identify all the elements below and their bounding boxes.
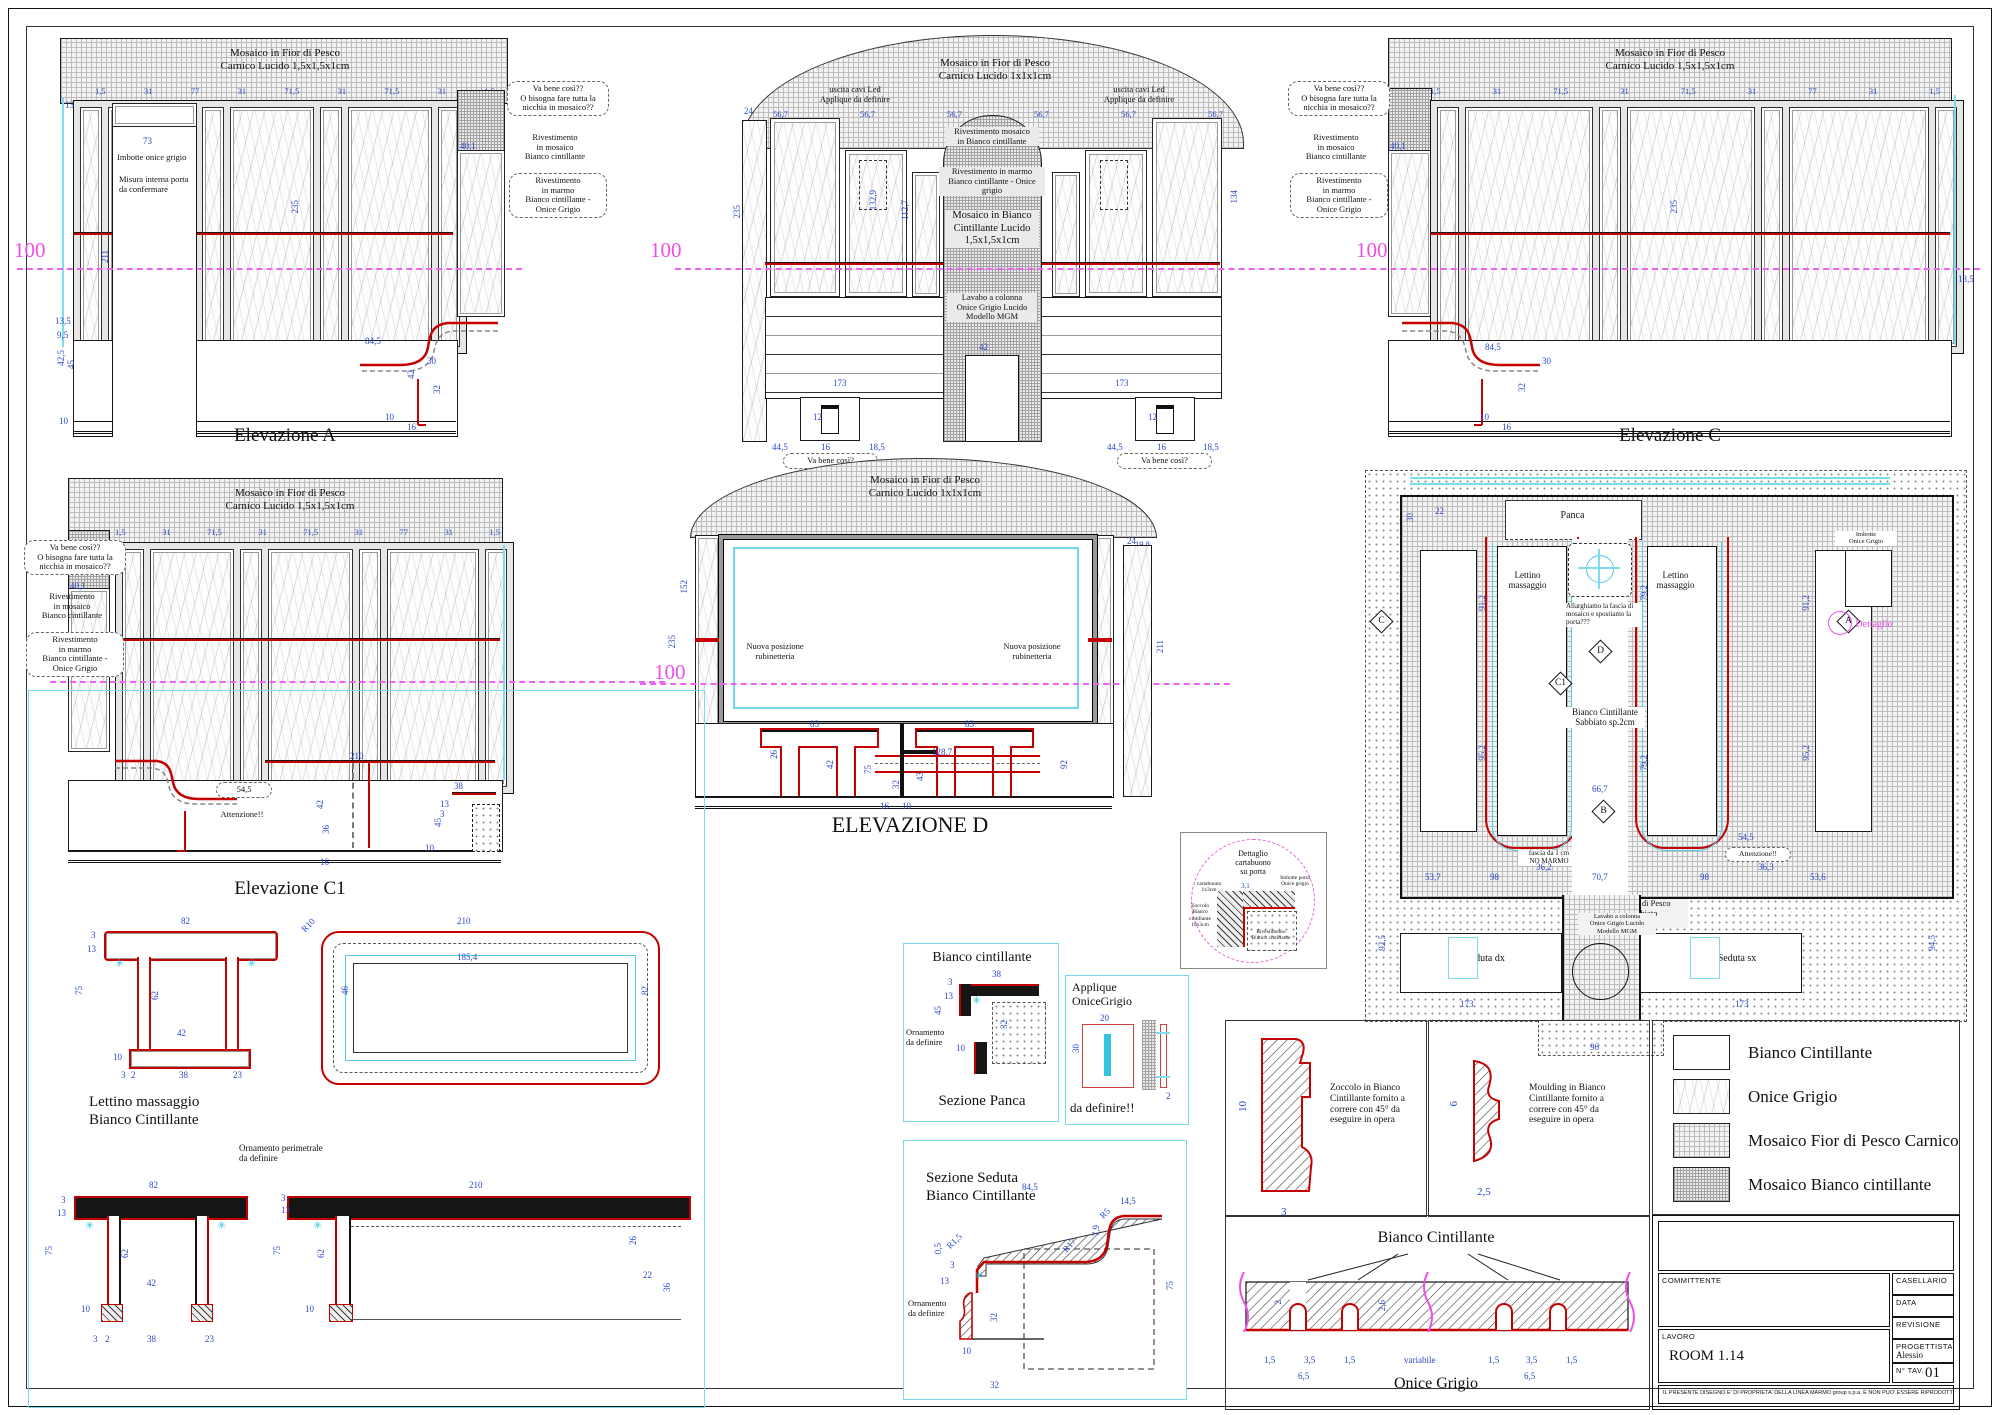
dim: 82 — [181, 917, 190, 926]
dim: 210 — [457, 917, 471, 926]
dim: 84,5 — [365, 337, 381, 346]
dim: 10 — [1238, 1101, 1249, 1112]
dim: 42 — [407, 370, 416, 379]
dim: 6 — [1449, 1101, 1460, 1107]
dim: 13 — [87, 945, 96, 954]
dim: 6,5 — [1298, 1372, 1309, 1381]
elev-d-red-tick-right — [1088, 638, 1112, 642]
dim: 3 — [61, 1196, 66, 1205]
elev-c-note-rmos: Rivestimento in mosaico Bianco cintillan… — [1296, 133, 1376, 162]
panca-profile-drop — [959, 984, 971, 1016]
dim: 30 — [427, 357, 436, 366]
legend-label: Onice Grigio — [1748, 1087, 1837, 1107]
dim: 32 — [990, 1313, 999, 1322]
lettino-ornamento-note: Ornamento perimetrale da definire — [239, 1143, 349, 1164]
dim: 83 — [965, 720, 974, 729]
titleblock-revisione: REVISIONE — [1892, 1317, 1954, 1339]
dim: 10 — [81, 1305, 90, 1314]
onyx-panel — [1627, 107, 1755, 347]
moulding-label: Moulding in Bianco Cintillante fornito a… — [1529, 1083, 1629, 1126]
sezione-panca-material: Bianco cintillante — [912, 950, 1052, 967]
elev-d-side-wall — [1123, 545, 1152, 797]
plan-crosshair — [1586, 555, 1614, 583]
field-label: REVISIONE — [1896, 1320, 1940, 1329]
elev-a-cyan-line — [62, 97, 64, 347]
dim: 56,7 — [1208, 110, 1223, 119]
dim: 45 — [67, 360, 76, 369]
legend-swatch-mosaico-bianco — [1673, 1167, 1730, 1202]
strip-panel: Bianco Cintillante 1,5 3,5 1,5 variabile… — [1225, 1215, 1650, 1410]
elev-b-window — [912, 172, 940, 297]
dim: 75 — [864, 765, 873, 774]
snowflake-icon: ✳ — [972, 994, 981, 1007]
dim: 3 — [121, 1071, 126, 1080]
dim: 42,5 — [57, 350, 66, 366]
dim: 1,5 — [1264, 1356, 1275, 1365]
elev-a-note-misura: Misura interna porta da confermare — [119, 175, 209, 194]
legend-label: Mosaico Fior di Pesco Carnico — [1748, 1131, 1959, 1151]
dim: 32 — [433, 385, 442, 394]
dim: 84,5 — [1485, 343, 1501, 352]
dim: 10 — [305, 1305, 314, 1314]
dim: 1,5 — [1488, 1356, 1499, 1365]
elev-c-note-q1: Va bene così?? O bisogna fare tutta la n… — [1288, 81, 1390, 116]
applique-mosaic-strip — [1142, 1020, 1156, 1090]
detail-door-box: Dettaglio cartabuono su porta cartabuono… — [1180, 832, 1327, 969]
strip-top-label: Bianco Cintillante — [1326, 1228, 1546, 1247]
dim: 36,2 — [1536, 863, 1552, 872]
elev-c1-mosaic-label: Mosaico in Fior di Pesco Carnico Lucido … — [170, 487, 410, 513]
lettino-side-floor — [351, 1319, 681, 1320]
plug-icon — [821, 405, 839, 434]
elev-b-note-rmarmo: Rivestimento in marmo Bianco cintillante… — [939, 167, 1045, 196]
dim: 211 — [1156, 640, 1165, 653]
elev-b-mosaic-label: Mosaico in Fior di Pesco Carnico Lucido … — [875, 57, 1115, 83]
plan-corridor-line2 — [1410, 483, 1890, 485]
titleblock-committente: COMMITTENTE — [1658, 1273, 1890, 1327]
sezione-panca-box: Bianco cintillante ✳ 38 3 13 45 32 10 Or… — [903, 943, 1059, 1122]
snowflake-icon: ✳ — [115, 957, 124, 970]
plan-seduta-sx-niche — [1690, 937, 1720, 979]
onyx-panel — [1789, 107, 1929, 347]
dim: 1,5 — [489, 528, 500, 537]
lettino-sec2-top — [74, 1196, 248, 1220]
zoccolo-profile — [1254, 1033, 1324, 1203]
elev-d-shelf-left — [760, 728, 879, 748]
seduta-profile: ✳ — [914, 1171, 1176, 1386]
elev-a-top-dims: 1,531773171,53171,5311,5 — [95, 87, 495, 96]
lettino-side-dashed — [351, 1226, 681, 1227]
elev-a-step-profile — [330, 317, 505, 437]
snowflake-icon: ✳ — [217, 1219, 226, 1232]
dim: 56,7 — [1121, 110, 1136, 119]
plan-lettino-1-label: Lettino massaggio — [1500, 570, 1555, 591]
dim: 3 — [91, 931, 96, 940]
dim: 56,7 — [947, 110, 962, 119]
dim: 1,5 — [95, 87, 106, 96]
dim: 92 — [1060, 760, 1069, 769]
field-label: COMMITTENTE — [1662, 1276, 1721, 1285]
level-label-a: 100 — [14, 240, 46, 261]
dim: 31 — [338, 87, 347, 96]
dim: 84,5 — [1022, 1183, 1038, 1192]
plan-corridor-line — [1410, 477, 1890, 479]
dim: 13 — [57, 1209, 66, 1218]
dim: 91,2 — [1802, 595, 1811, 611]
dim: 24 — [744, 107, 753, 116]
dim: 2,6 — [1378, 1300, 1387, 1311]
lettino-side-foot — [329, 1304, 353, 1322]
dim: 211 — [101, 250, 110, 263]
dim: 2 — [1274, 1300, 1283, 1305]
detail-door-rivestimento: Rivestimento Bianco cintillante — [1249, 929, 1293, 942]
dim: 73 — [143, 137, 152, 146]
legend-label: Mosaico Bianco cintillante — [1748, 1175, 1931, 1195]
dim: 31 — [238, 87, 247, 96]
elev-c-mosaic-label: Mosaico in Fior di Pesco Carnico Lucido … — [1540, 47, 1800, 73]
elev-a-niche-panel — [457, 150, 505, 317]
dim: 7,9 — [1092, 1225, 1101, 1236]
dim: 12 — [1148, 413, 1157, 422]
dim: 12 — [813, 413, 822, 422]
dim: 36,3 — [1758, 863, 1774, 872]
dim: 56,7 — [1034, 110, 1049, 119]
dim: 3 — [281, 1194, 286, 1203]
dim: 94,5 — [1928, 935, 1937, 951]
legend-swatch-mosaico-fior — [1673, 1123, 1730, 1158]
elev-c1-note-rmos: Rivestimento in mosaico Bianco cintillan… — [32, 592, 112, 621]
elev-c1-note-rmarmo: Rivestimento in marmo Bianco cintillante… — [26, 632, 124, 677]
elev-d-red-tick-left — [695, 638, 719, 642]
dim: 24 — [1127, 537, 1136, 546]
elev-b-lavabo-niche — [965, 355, 1019, 442]
elev-b-lower-band-left — [765, 297, 945, 399]
dim: 36 — [663, 1283, 672, 1292]
onyx-panel — [1599, 107, 1621, 347]
dim: 3,1 — [1241, 883, 1250, 890]
dim: 82 — [641, 986, 650, 995]
dim: 98 — [1490, 873, 1499, 882]
legend-label: Bianco Cintillante — [1748, 1043, 1872, 1063]
plan-lettino-2-label: Lettino massaggio — [1648, 570, 1703, 591]
dim: 95,2 — [1478, 745, 1487, 761]
detail-door-imbotte: Imbotte porta Onice grigio — [1273, 875, 1317, 888]
dim: 79,2 — [1640, 585, 1649, 601]
elev-c-wainscot — [1430, 100, 1964, 354]
dim: 13 — [65, 101, 74, 110]
lettino-title: Lettino massaggio Bianco Cintillante — [89, 1093, 309, 1129]
titleblock-progettista: PROGETTISTA Alessio — [1892, 1339, 1954, 1363]
elev-d-shelf-right — [915, 728, 1034, 748]
elev-b-note-lavabo: Lavabo a colonna Onice Grigio Lucido Mod… — [947, 293, 1037, 322]
dim: R10 — [300, 917, 317, 934]
legend-item: Mosaico Bianco cintillante — [1673, 1167, 1931, 1202]
dim: 31 — [355, 528, 364, 537]
applique-cyan-tie-top — [1156, 1032, 1170, 1034]
titleblock-tav-value: 01 — [1925, 1365, 1940, 1382]
dim: 132,9 — [869, 190, 878, 210]
dim: variabile — [1404, 1356, 1435, 1365]
elev-b-note-led1: uscita cavi Led Applique da definire — [813, 85, 897, 104]
dim: 13,5 — [55, 317, 71, 326]
detail-door-head — [1243, 891, 1295, 909]
lettino-sec-base — [129, 1049, 251, 1069]
plan-view: Panca Lettino massaggio Lettino massaggi… — [1340, 455, 1980, 1065]
field-label: DATA — [1896, 1298, 1917, 1307]
dim: 13 — [940, 1277, 949, 1286]
elev-c-level-line — [1320, 268, 1980, 270]
dim: 3,5 — [1526, 1356, 1537, 1365]
dim: 38 — [147, 1335, 156, 1344]
panca-profile-moulding — [974, 1042, 987, 1074]
titleblock-progettista-value: Alessio — [1896, 1350, 1923, 1360]
lettino-plan — [321, 931, 660, 1085]
elev-d-title: ELEVAZIONE D — [760, 812, 1060, 838]
elev-c-niche-panel — [1388, 150, 1432, 317]
elev-c-top-dims: 1,53171,53171,53177311,5 — [1430, 87, 1940, 96]
moulding-profile — [1464, 1056, 1519, 1176]
field-label: N° TAV. — [1896, 1366, 1924, 1375]
elev-b-note-rmos: Rivestimento mosaico in Bianco cintillan… — [945, 127, 1039, 146]
onyx-panel — [80, 107, 102, 347]
dim: 77 — [191, 87, 200, 96]
snowflake-icon: ✳ — [85, 1219, 94, 1232]
section-marker-letter: D — [1593, 644, 1608, 659]
applique-title: Applique OniceGrigio — [1072, 980, 1152, 1009]
dim: 10 — [113, 1053, 122, 1062]
zoccolo-label: Zoccolo in Bianco Cintillante fornito a … — [1330, 1083, 1422, 1126]
dim: 40,1 — [460, 142, 476, 151]
dim: 2,5 — [1477, 1187, 1491, 1198]
dim: 38 — [992, 970, 1001, 979]
dim: 26 — [770, 750, 779, 759]
detail-door-cartabuono: cartabuono 1x3cm — [1189, 881, 1229, 894]
plug-icon — [1156, 405, 1174, 434]
dim: 14,5 — [1120, 1197, 1136, 1206]
dim: 38 — [179, 1071, 188, 1080]
snowflake-icon: ✳ — [313, 1219, 322, 1232]
elev-c-cyan-line — [1954, 95, 1956, 345]
snowflake-icon: ✳ — [247, 957, 256, 970]
dim: 31 — [144, 87, 153, 96]
elev-b-red-line-left — [765, 262, 943, 265]
dim: 16 — [880, 802, 889, 811]
dim: 185,4 — [457, 953, 477, 962]
dim: 173 — [1460, 1000, 1474, 1009]
plan-lavabo-circle — [1572, 943, 1629, 1000]
dim: 71,5 — [384, 87, 399, 96]
elev-b-note-led2: uscita cavi Led Applique da definire — [1097, 85, 1181, 104]
dim: 53,6 — [1810, 873, 1826, 882]
section-marker-letter: C1 — [1553, 676, 1568, 691]
titleblock-data: DATA — [1892, 1295, 1954, 1317]
plan-note-allarghiamo: Allarghiamo la fascia di mosaico e spost… — [1566, 603, 1642, 627]
elev-c1-red-line — [115, 638, 500, 641]
strip-drawing — [1238, 1252, 1636, 1352]
dim: 98 — [1700, 873, 1709, 882]
dim: 112,7 — [901, 200, 910, 220]
dim: 56,7 — [860, 110, 875, 119]
dim: 70,7 — [1592, 873, 1608, 882]
lettino-sec2-foot — [191, 1304, 213, 1322]
dim: 42 — [147, 1279, 156, 1288]
dim: 91,2 — [1478, 595, 1487, 611]
dim: 42 — [177, 1029, 186, 1038]
onyx-panel — [1761, 107, 1783, 347]
seduta-ornamento-note: Ornamento da definire — [908, 1299, 960, 1318]
dim: 75 — [45, 1246, 54, 1255]
elev-b-note-mosB: Mosaico in Bianco Cintillante Lucido 1,5… — [945, 210, 1039, 248]
dim: 235 — [733, 205, 742, 219]
applique-led-bar — [1104, 1034, 1111, 1076]
dim: 2 — [131, 1071, 136, 1080]
dim: 16 — [407, 423, 416, 432]
onyx-panel — [230, 107, 314, 347]
disclaimer-text: IL PRESENTE DISEGNO E' DI PROPRIETA' DEL… — [1663, 1390, 1954, 1396]
panca-profile-top — [959, 984, 1039, 996]
section-marker-letter: B — [1596, 804, 1611, 819]
elev-b-red-line-right — [1040, 262, 1220, 265]
plan-imbotte-label: Imbotte Onice Grigio — [1835, 531, 1897, 546]
applique-box: Applique OniceGrigio 20 30 2 da definire… — [1065, 975, 1189, 1125]
dim: 10 — [902, 802, 911, 811]
plan-note-attenzione: Attenzione!! — [1725, 847, 1791, 862]
lettino-plan-bevel — [353, 963, 628, 1053]
dim: 30 — [1406, 513, 1415, 522]
elev-c-note-rmarmo: Rivestimento in marmo Bianco cintillante… — [1290, 173, 1388, 218]
dim: 235 — [668, 635, 677, 649]
dim: 32 — [892, 780, 901, 789]
dim: 30 — [1072, 1044, 1081, 1053]
dim: 173 — [1115, 379, 1129, 388]
dim: 32 — [990, 1381, 999, 1390]
elev-b-led-box — [1100, 160, 1128, 210]
elev-a-note-rmos: Rivestimento in mosaico Bianco cintillan… — [515, 133, 595, 162]
dim: 71,5 — [1681, 87, 1696, 96]
elevation-a: Mosaico in Fior di Pesco Carnico Lucido … — [55, 25, 565, 450]
lettino-sec-leg — [225, 957, 239, 1052]
dim: 16 — [1502, 423, 1511, 432]
lettino-sec-leg — [137, 957, 151, 1052]
dim: 92,5 — [1378, 935, 1387, 951]
dim: 71,5 — [303, 528, 318, 537]
elev-d-cabinet-zone — [695, 723, 1114, 798]
dim: 10 — [59, 417, 68, 426]
legend-item: Onice Grigio — [1673, 1079, 1837, 1114]
zoccolo-panel: 10 3 Zoccolo in Bianco Cintillante forni… — [1225, 1020, 1427, 1217]
dim: 77 — [1808, 87, 1817, 96]
dim: 22 — [1435, 507, 1444, 516]
dim: 53,7 — [1425, 873, 1441, 882]
dim: 3,5 — [1304, 1356, 1315, 1365]
dim: 1,5 — [115, 528, 126, 537]
dim: 31 — [1869, 87, 1878, 96]
dim: 1,5 — [1344, 1356, 1355, 1365]
dim: 10 — [1480, 413, 1489, 422]
panca-ornamento-note: Ornamento da definire — [906, 1028, 958, 1047]
dim: 210 — [469, 1181, 483, 1190]
sezione-seduta-box: Sezione Seduta Bianco Cintillante ✳ 84,5… — [903, 1140, 1187, 1400]
dim: 235 — [1670, 200, 1679, 214]
lettino-sec2-leg — [195, 1216, 209, 1304]
titleblock-logo-area — [1658, 1221, 1954, 1271]
dim: 20 — [1100, 1014, 1109, 1023]
elev-b-window — [1152, 118, 1222, 297]
onyx-panel — [1437, 107, 1459, 347]
dim: 75 — [75, 986, 84, 995]
plan-dettaglio-label: Dettaglio — [1848, 619, 1900, 630]
dim: 71,5 — [207, 528, 222, 537]
drawing-sheet: 100 100 100 100 100 Mosaico in Fior di P… — [0, 0, 2000, 1415]
dim: 56,7 — [773, 110, 788, 119]
dim: 13 — [944, 992, 953, 1001]
elev-b-level-line — [675, 268, 1315, 270]
dim: 3 — [948, 978, 953, 987]
plan-crosshair-v — [1598, 549, 1600, 589]
dim: 31 — [258, 528, 267, 537]
titleblock-casellario: CASELLARIO — [1892, 1273, 1954, 1295]
dim: 3 — [93, 1335, 98, 1344]
dim: 23 — [233, 1071, 242, 1080]
dim: 46 — [341, 986, 350, 995]
panca-concrete — [992, 1002, 1046, 1064]
elev-a-note-imbotte: Imbotte onice grigio — [117, 153, 195, 163]
dim: 66,7 — [1592, 785, 1608, 794]
plan-panca-label: Panca — [1505, 510, 1640, 522]
elev-d-mosaic-label: Mosaico in Fior di Pesco Carnico Lucido … — [810, 474, 1040, 500]
dim: 128,7 — [932, 748, 952, 757]
elev-c-red-line — [1430, 232, 1950, 235]
dim: 40,1 — [70, 582, 86, 591]
section-marker-letter: C — [1374, 614, 1389, 629]
dim: 13,5 — [1958, 275, 1974, 284]
dim: 82 — [149, 1181, 158, 1190]
elev-d-leg — [836, 746, 856, 796]
applique-cyan-tie-bot — [1156, 1076, 1170, 1078]
dim: 2 — [105, 1335, 110, 1344]
dim: 23 — [205, 1335, 214, 1344]
dim: 31 — [444, 528, 453, 537]
dim: 134 — [1230, 190, 1239, 204]
dim: 1,5 — [1566, 1356, 1577, 1365]
legend-item: Bianco Cintillante — [1673, 1035, 1872, 1070]
lettino-sec2-foot — [101, 1304, 123, 1322]
elev-b-lower-band-right — [1040, 297, 1222, 399]
dim: 31 — [1620, 87, 1629, 96]
dim: 62 — [121, 1249, 130, 1258]
legend-swatch-bianco — [1673, 1035, 1730, 1070]
dim: 75 — [1166, 1281, 1175, 1290]
dim: 31 — [1493, 87, 1502, 96]
applique-note: da definire!! — [1070, 1100, 1180, 1116]
dim: 13 — [281, 1206, 290, 1215]
titleblock-lavoro: LAVORO ROOM 1.14 — [1658, 1329, 1890, 1383]
elev-b-window — [1052, 172, 1080, 297]
dim: 62 — [151, 991, 160, 1000]
dim: 77 — [400, 528, 409, 537]
legend: Bianco Cintillante Onice Grigio Mosaico … — [1652, 1020, 1960, 1215]
dim: 95,2 — [1802, 745, 1811, 761]
onyx-panel — [1465, 107, 1593, 347]
dim: 31 — [438, 87, 447, 96]
legend-swatch-onice — [1673, 1079, 1730, 1114]
elev-a-door-header — [112, 103, 197, 127]
dim: 32 — [1000, 1020, 1009, 1029]
svg-text:✳: ✳ — [974, 1270, 983, 1282]
dim: 42 — [979, 343, 988, 352]
elev-a-title: Elevazione A — [165, 425, 405, 447]
plan-wall-panel-left — [1420, 550, 1477, 832]
